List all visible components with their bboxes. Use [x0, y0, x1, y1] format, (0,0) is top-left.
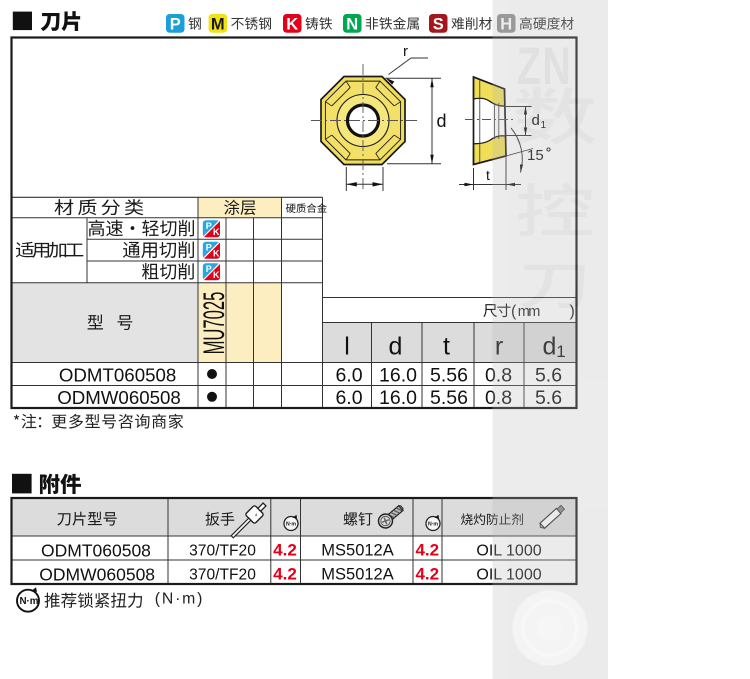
- svg-text:K: K: [213, 249, 220, 259]
- svg-text:370/TF20: 370/TF20: [189, 567, 256, 584]
- svg-text:6.0: 6.0: [335, 387, 362, 409]
- svg-text:t: t: [486, 167, 490, 183]
- svg-text:l: l: [344, 333, 350, 361]
- svg-text:P: P: [206, 264, 212, 274]
- svg-text:4.2: 4.2: [415, 565, 439, 584]
- svg-text:P: P: [206, 221, 212, 231]
- svg-text:16.0: 16.0: [379, 364, 417, 386]
- svg-text:P: P: [170, 15, 181, 33]
- svg-text:K: K: [213, 270, 220, 280]
- svg-text:M: M: [211, 15, 225, 33]
- svg-text:MS5012A: MS5012A: [321, 542, 393, 560]
- svg-text:370/TF20: 370/TF20: [189, 543, 256, 560]
- svg-text:5.56: 5.56: [430, 364, 468, 386]
- svg-text:r: r: [403, 43, 408, 60]
- svg-text:ODMW060508: ODMW060508: [57, 387, 181, 408]
- svg-text:N·m: N·m: [286, 521, 296, 527]
- svg-text:4.2: 4.2: [415, 541, 439, 560]
- svg-text:t: t: [443, 333, 450, 361]
- svg-text:K: K: [213, 227, 220, 237]
- svg-text:N·m: N·m: [428, 521, 438, 527]
- svg-text:ZN: ZN: [517, 36, 572, 95]
- svg-text:N: N: [346, 15, 358, 33]
- svg-text:ODMT060508: ODMT060508: [41, 541, 151, 561]
- svg-text:d: d: [437, 111, 447, 131]
- svg-text:5.56: 5.56: [430, 387, 468, 409]
- svg-text:N·m: N·m: [19, 596, 38, 607]
- svg-text:MS5012A: MS5012A: [321, 566, 393, 584]
- svg-text:ODMW060508: ODMW060508: [39, 565, 155, 585]
- svg-text:16.0: 16.0: [379, 387, 417, 409]
- svg-text:ODMT060508: ODMT060508: [59, 364, 176, 385]
- svg-text:(N·m): (N·m): [155, 591, 204, 608]
- svg-text:4.2: 4.2: [273, 565, 297, 584]
- svg-text:S: S: [433, 15, 444, 33]
- svg-text:d: d: [389, 333, 403, 361]
- svg-text:6.0: 6.0: [335, 364, 362, 386]
- svg-text:K: K: [286, 15, 298, 33]
- svg-text:MU7025: MU7025: [198, 292, 231, 355]
- svg-text:4.2: 4.2: [273, 541, 297, 560]
- svg-text:P: P: [206, 243, 212, 253]
